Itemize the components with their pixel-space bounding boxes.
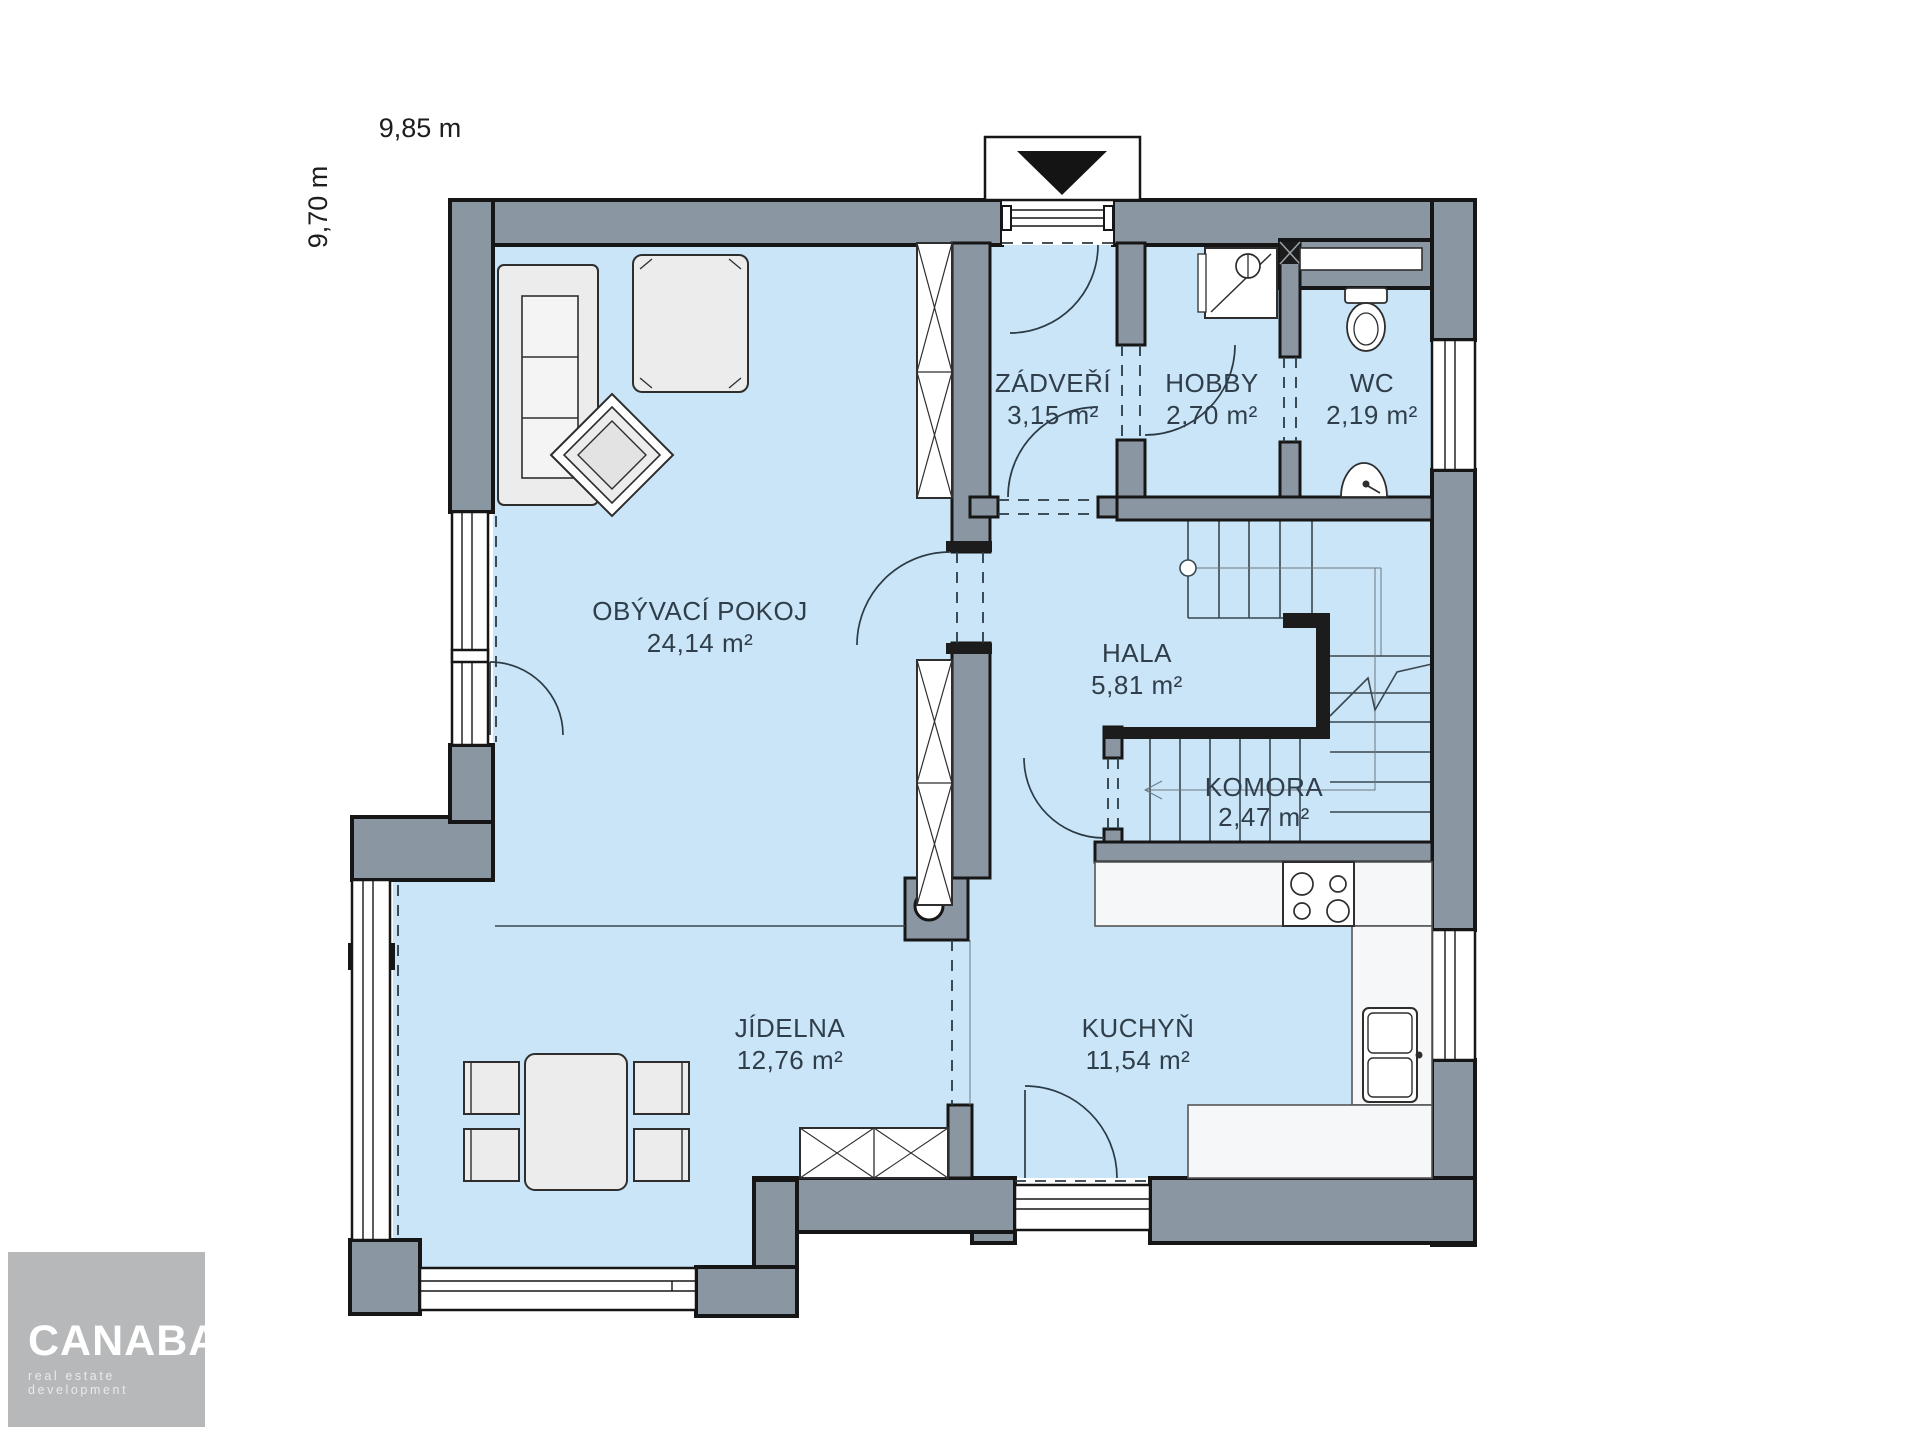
wall-step-left xyxy=(352,817,493,880)
hobby-appliance xyxy=(1198,248,1277,318)
room-area-hala: 5,81 m² xyxy=(1091,670,1183,700)
floor-plan-drawing: OBÝVACÍ POKOJ 24,14 m² ZÁDVEŘÍ 3,15 m² H… xyxy=(0,0,1920,1440)
logo-tagline: real estate development xyxy=(28,1369,205,1397)
room-area-kuchyn: 11,54 m² xyxy=(1086,1045,1191,1075)
wall-left-top xyxy=(450,200,493,512)
dimension-height-label: 9,70 m xyxy=(303,166,333,249)
room-label-zadveri: ZÁDVEŘÍ xyxy=(995,368,1111,398)
dining-chair xyxy=(634,1062,689,1114)
room-label-hala: HALA xyxy=(1102,638,1172,668)
entrance-opening xyxy=(1002,198,1113,245)
room-area-obyvaci-pokoj: 24,14 m² xyxy=(647,628,754,658)
floor-plan-page: OBÝVACÍ POKOJ 24,14 m² ZÁDVEŘÍ 3,15 m² H… xyxy=(0,0,1920,1440)
wall-zadveri-hobby-top xyxy=(1117,243,1145,345)
wall-right-2 xyxy=(1432,470,1475,930)
room-label-hobby: HOBBY xyxy=(1165,368,1259,398)
registered-mark: ® xyxy=(220,1327,231,1343)
dining-chair xyxy=(464,1129,519,1181)
window-dining-left xyxy=(352,880,398,1240)
wc-shelf xyxy=(1300,248,1422,270)
window-wc-right xyxy=(1432,340,1475,470)
sideboard xyxy=(800,1128,948,1178)
room-area-wc: 2,19 m² xyxy=(1326,400,1418,430)
porch xyxy=(985,137,1140,200)
wall-hobby-wc-south xyxy=(1117,497,1432,520)
window-dining-bottom xyxy=(420,1268,696,1310)
kitchen-sink xyxy=(1363,1008,1423,1102)
wall-dining-kitchen-stub xyxy=(948,1105,972,1178)
room-label-kuchyn: KUCHYŇ xyxy=(1082,1013,1195,1043)
coffee-table xyxy=(633,255,748,392)
room-label-jidelna: JÍDELNA xyxy=(735,1013,846,1043)
dining-table xyxy=(525,1054,627,1190)
wall-zadveri-jamb-right xyxy=(1098,497,1117,517)
wall-kitchen-north xyxy=(1095,842,1432,862)
wardrobe-lower xyxy=(917,660,952,905)
wall-living-hala-lower xyxy=(952,643,990,878)
dining-chair xyxy=(634,1129,689,1181)
wall-bottom-kitchen xyxy=(1150,1178,1475,1243)
room-label-obyvaci-pokoj: OBÝVACÍ POKOJ xyxy=(592,596,808,626)
wall-right-1 xyxy=(1432,200,1475,340)
wardrobe-upper xyxy=(917,243,952,498)
wall-zadveri-jamb-left xyxy=(970,497,998,517)
logo-brand: CANABA® xyxy=(28,1320,205,1363)
wall-bay-corner-right xyxy=(696,1267,797,1316)
dimension-width-label: 9,85 m xyxy=(379,113,462,143)
room-label-wc: WC xyxy=(1350,368,1394,398)
wall-bay-corner-left xyxy=(350,1240,420,1314)
dining-chair xyxy=(464,1062,519,1114)
stove xyxy=(1283,862,1354,926)
window-kitchen-bottom xyxy=(1015,1185,1150,1230)
room-area-hobby: 2,70 m² xyxy=(1166,400,1258,430)
window-kitchen-right xyxy=(1432,930,1475,1060)
wall-zadveri-hobby-bottom xyxy=(1117,440,1145,497)
wall-hobby-wc-bottom xyxy=(1280,442,1300,497)
wall-top-left xyxy=(450,200,1002,245)
wall-left-mid xyxy=(450,745,493,822)
room-area-jidelna: 12,76 m² xyxy=(737,1045,844,1075)
toilet xyxy=(1345,288,1387,351)
room-area-zadveri: 3,15 m² xyxy=(1007,400,1099,430)
room-area-komora: 2,47 m² xyxy=(1218,802,1310,832)
room-label-komora: KOMORA xyxy=(1205,772,1324,802)
canaba-logo: CANABA® real estate development xyxy=(8,1252,205,1427)
